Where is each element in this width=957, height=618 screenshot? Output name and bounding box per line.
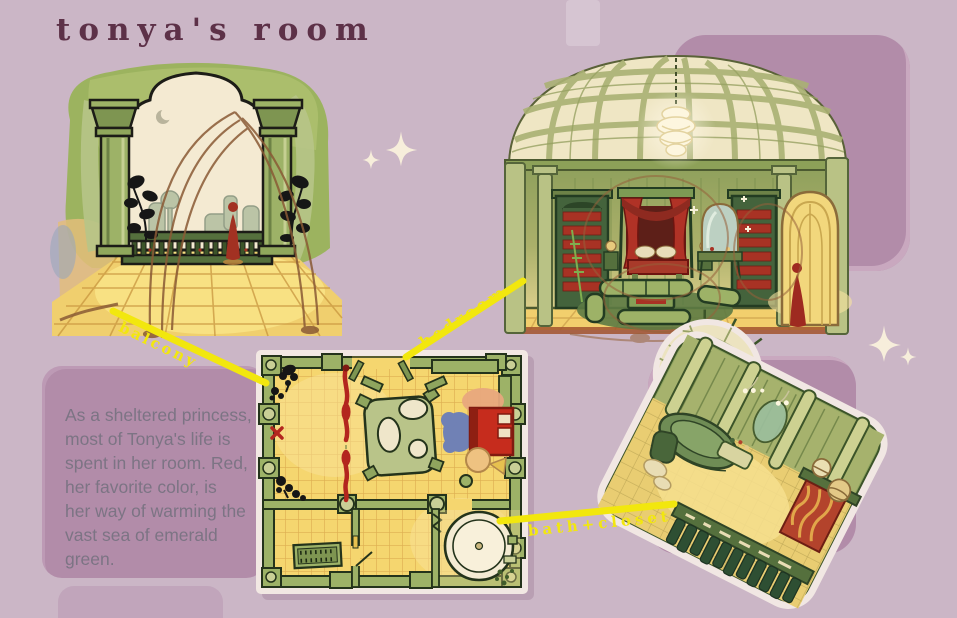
paint-smudge <box>50 225 76 279</box>
sparkle-icon <box>900 347 916 365</box>
piano <box>293 543 341 568</box>
balcony-illustration <box>50 63 342 338</box>
arch-window <box>128 73 264 250</box>
desk <box>432 360 498 373</box>
bedroom-illustration <box>505 56 852 344</box>
description-paragraph: As a sheltered princess, most of Tonya's… <box>65 404 265 572</box>
sparkle-icon <box>363 150 381 170</box>
art-board: tonya's room As a sheltered princess, mo… <box>0 0 957 618</box>
balustrade <box>122 232 272 264</box>
floorplan-illustration <box>256 350 534 600</box>
chandelier <box>636 90 716 170</box>
sparkle-icon <box>386 131 417 166</box>
bath-closet-illustration <box>582 295 910 618</box>
sparkle-icon <box>868 326 901 362</box>
seating-cluster <box>355 387 444 481</box>
page-title: tonya's room <box>56 12 376 48</box>
